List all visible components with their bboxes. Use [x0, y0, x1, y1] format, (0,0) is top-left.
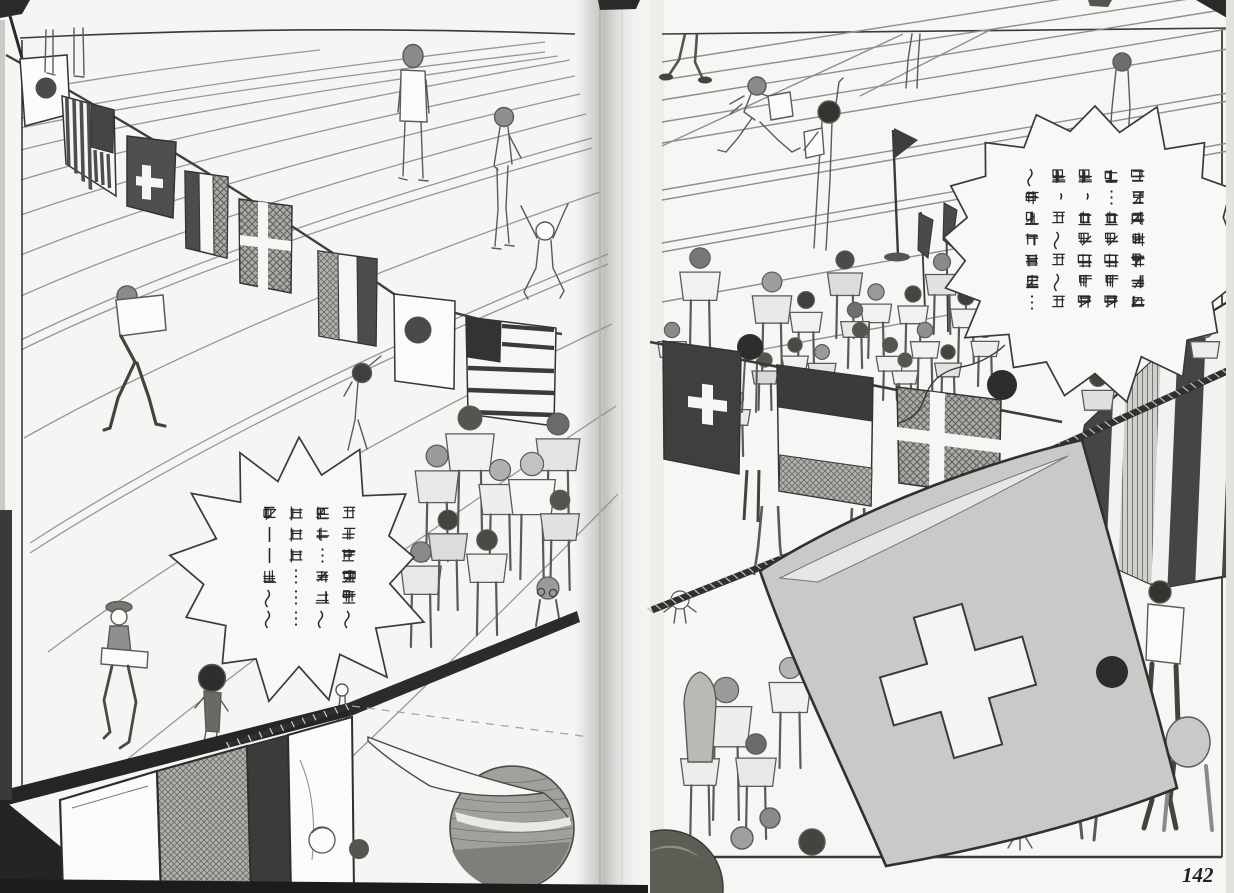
svg-text:142: 142	[1182, 863, 1214, 887]
